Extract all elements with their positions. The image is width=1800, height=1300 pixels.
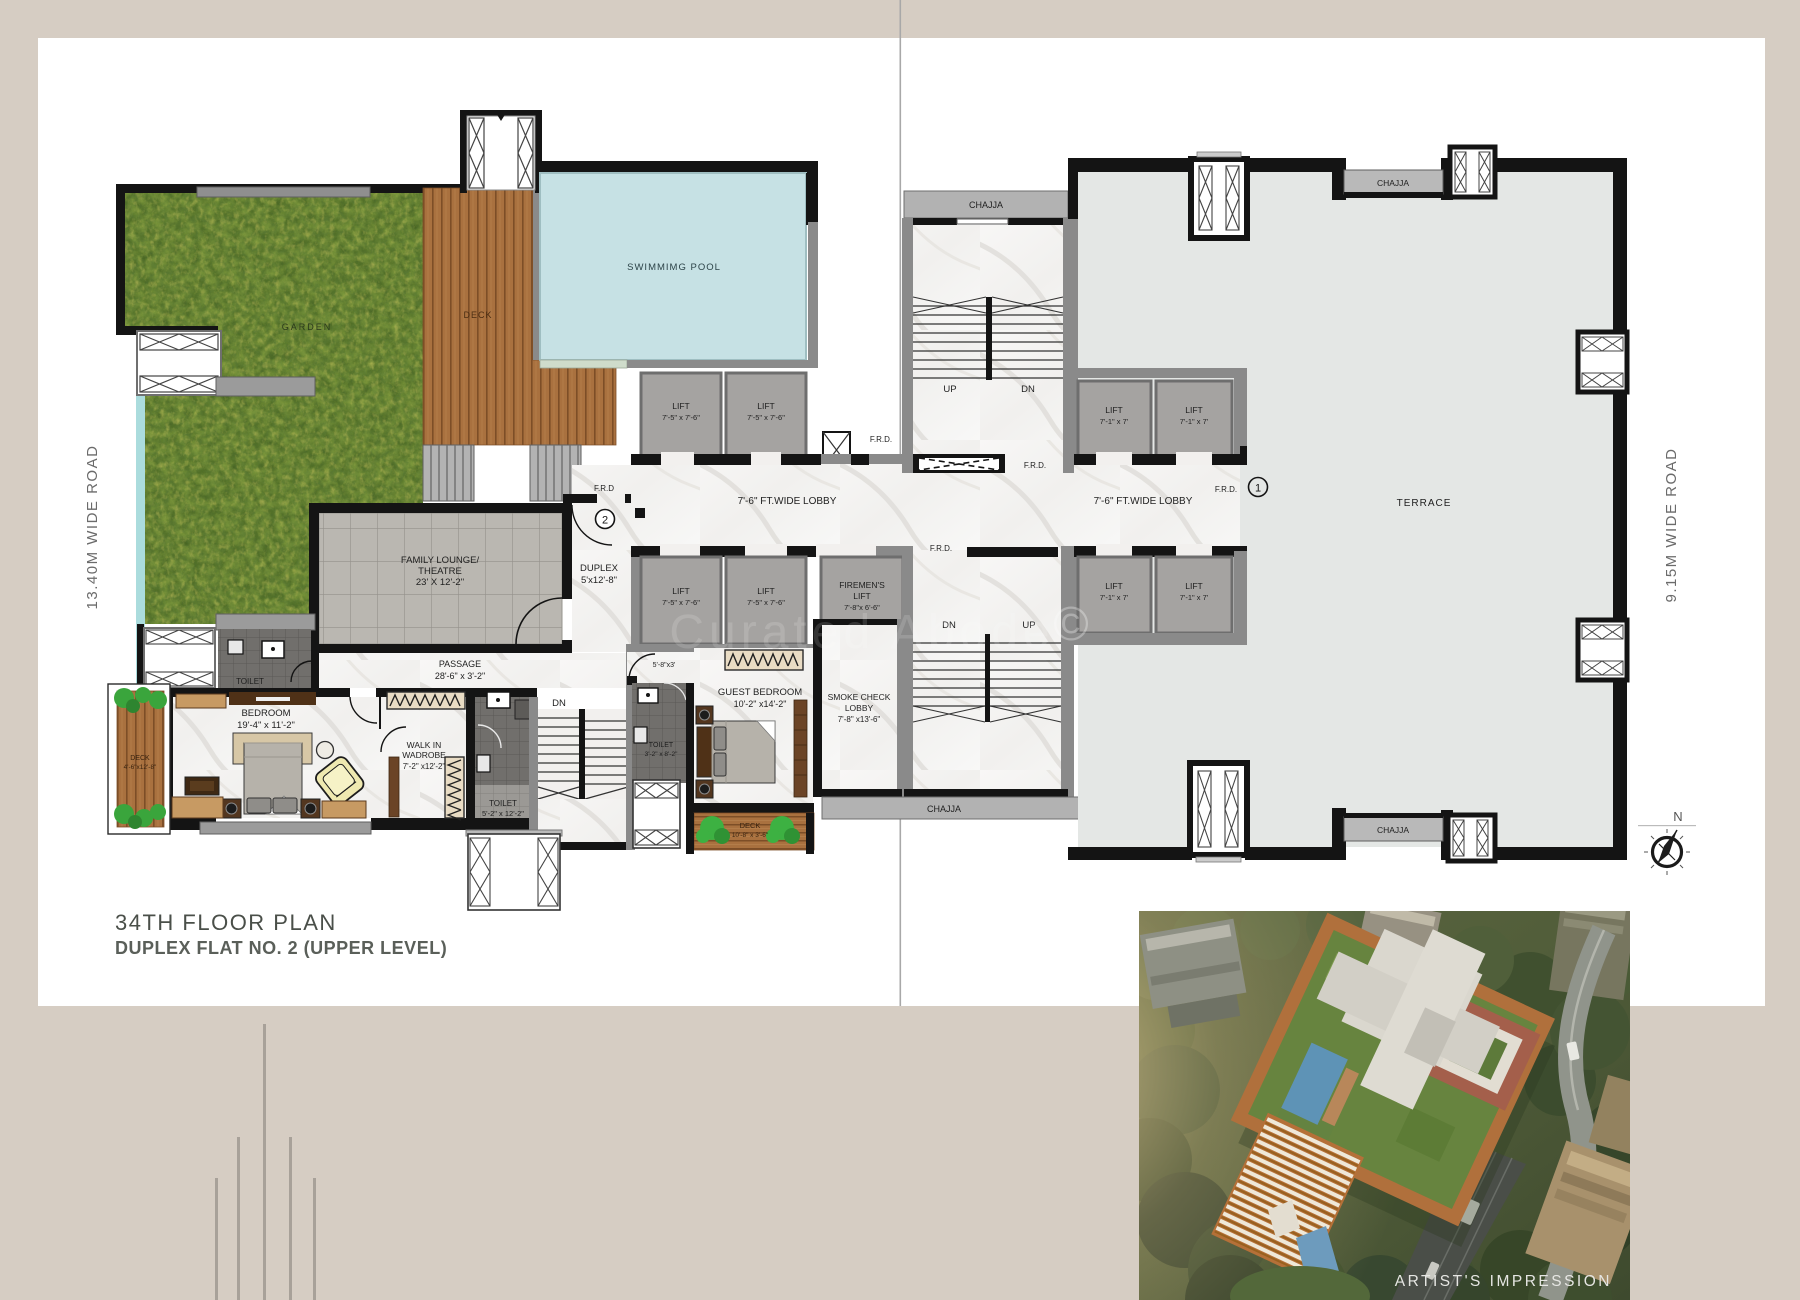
svg-text:1: 1 (1255, 483, 1261, 495)
svg-text:7'-5" x 7'-6": 7'-5" x 7'-6" (747, 413, 785, 422)
svg-text:5'x12'-8": 5'x12'-8" (581, 575, 617, 586)
svg-text:DUPLEX: DUPLEX (580, 563, 619, 574)
svg-text:LIFT: LIFT (672, 586, 689, 596)
svg-text:FIREMEN'S: FIREMEN'S (839, 580, 885, 590)
svg-text:10'-8" x 3'-6": 10'-8" x 3'-6" (732, 832, 769, 839)
svg-text:GUEST BEDROOM: GUEST BEDROOM (718, 687, 802, 698)
svg-text:5'-2" x 12'-2": 5'-2" x 12'-2" (482, 809, 524, 818)
svg-text:F.R.D: F.R.D (594, 484, 614, 493)
svg-text:F.R.D.: F.R.D. (870, 435, 892, 444)
svg-text:CHAJJA: CHAJJA (1377, 178, 1409, 188)
svg-text:2: 2 (602, 515, 608, 527)
svg-text:5'-8"x3': 5'-8"x3' (653, 662, 676, 669)
svg-text:PASSAGE: PASSAGE (439, 659, 481, 669)
svg-text:UP: UP (943, 384, 956, 395)
svg-text:LIFT: LIFT (672, 401, 689, 411)
svg-text:CHAJJA: CHAJJA (969, 200, 1003, 210)
svg-text:13.40M WIDE ROAD: 13.40M WIDE ROAD (84, 445, 101, 610)
svg-text:DECK: DECK (130, 755, 150, 762)
svg-text:TERRACE: TERRACE (1397, 498, 1452, 509)
svg-text:7'-1" x 7': 7'-1" x 7' (1100, 417, 1129, 426)
svg-text:SMOKE CHECK: SMOKE CHECK (828, 692, 891, 702)
svg-text:LIFT: LIFT (1105, 405, 1122, 415)
svg-text:3'-2" x 8'-2": 3'-2" x 8'-2" (645, 751, 678, 758)
svg-text:7'-1" x 7': 7'-1" x 7' (1180, 417, 1209, 426)
svg-text:DN: DN (552, 698, 566, 709)
svg-text:LIFT: LIFT (757, 401, 774, 411)
svg-text:FAMILY LOUNGE/: FAMILY LOUNGE/ (401, 555, 480, 566)
svg-text:LIFT: LIFT (1105, 581, 1122, 591)
svg-text:WALK IN: WALK IN (407, 740, 442, 750)
svg-text:BEDROOM: BEDROOM (241, 708, 290, 719)
svg-text:F.R.D.: F.R.D. (1215, 485, 1237, 494)
svg-text:23' X 12'-2": 23' X 12'-2" (416, 577, 464, 588)
svg-text:GARDEN: GARDEN (282, 322, 333, 332)
svg-text:28'-6" x 3'-2": 28'-6" x 3'-2" (435, 671, 485, 681)
svg-text:TOILET: TOILET (236, 677, 264, 686)
svg-text:SWIMMIMG POOL: SWIMMIMG POOL (627, 262, 721, 273)
svg-text:N: N (1673, 809, 1682, 824)
svg-text:©: © (1053, 598, 1088, 651)
svg-text:THEATRE: THEATRE (418, 566, 462, 577)
svg-text:7'-1" x 7': 7'-1" x 7' (1100, 593, 1129, 602)
svg-text:19'-4" x 11'-2": 19'-4" x 11'-2" (237, 720, 295, 731)
svg-text:4'-6"x12'-8": 4'-6"x12'-8" (124, 764, 157, 771)
svg-text:F.R.D.: F.R.D. (930, 544, 952, 553)
svg-text:7'-5" x 7'-6": 7'-5" x 7'-6" (662, 413, 700, 422)
svg-text:LIFT: LIFT (757, 586, 774, 596)
svg-text:LIFT: LIFT (853, 591, 870, 601)
svg-text:DECK: DECK (740, 821, 761, 830)
svg-text:7'-2" x12'-2": 7'-2" x12'-2" (403, 762, 446, 771)
svg-text:DECK: DECK (463, 310, 492, 320)
svg-text:F.R.D.: F.R.D. (1024, 461, 1046, 470)
svg-text:7'-8" x13'-6": 7'-8" x13'-6" (838, 715, 881, 724)
svg-text:LIFT: LIFT (1185, 581, 1202, 591)
svg-text:7'-6" FT.WIDE LOBBY: 7'-6" FT.WIDE LOBBY (738, 496, 837, 507)
svg-text:WADROBE: WADROBE (402, 750, 446, 760)
svg-text:CHAJJA: CHAJJA (1377, 825, 1409, 835)
svg-text:CHAJJA: CHAJJA (927, 804, 961, 814)
svg-text:TOILET: TOILET (649, 742, 674, 749)
svg-text:LIFT: LIFT (1185, 405, 1202, 415)
svg-text:ARTIST'S IMPRESSION: ARTIST'S IMPRESSION (1395, 1273, 1612, 1290)
svg-text:7'-6" FT.WIDE LOBBY: 7'-6" FT.WIDE LOBBY (1094, 496, 1193, 507)
svg-text:DN: DN (1021, 384, 1035, 395)
svg-text:7'-1" x 7': 7'-1" x 7' (1180, 593, 1209, 602)
svg-text:LOBBY: LOBBY (845, 703, 874, 713)
svg-text:9.15M WIDE ROAD: 9.15M WIDE ROAD (1663, 447, 1680, 602)
svg-text:TOILET: TOILET (489, 799, 517, 808)
svg-text:Curated Abode: Curated Abode (669, 606, 1054, 659)
svg-text:10'-2" x14'-2": 10'-2" x14'-2" (734, 699, 787, 709)
